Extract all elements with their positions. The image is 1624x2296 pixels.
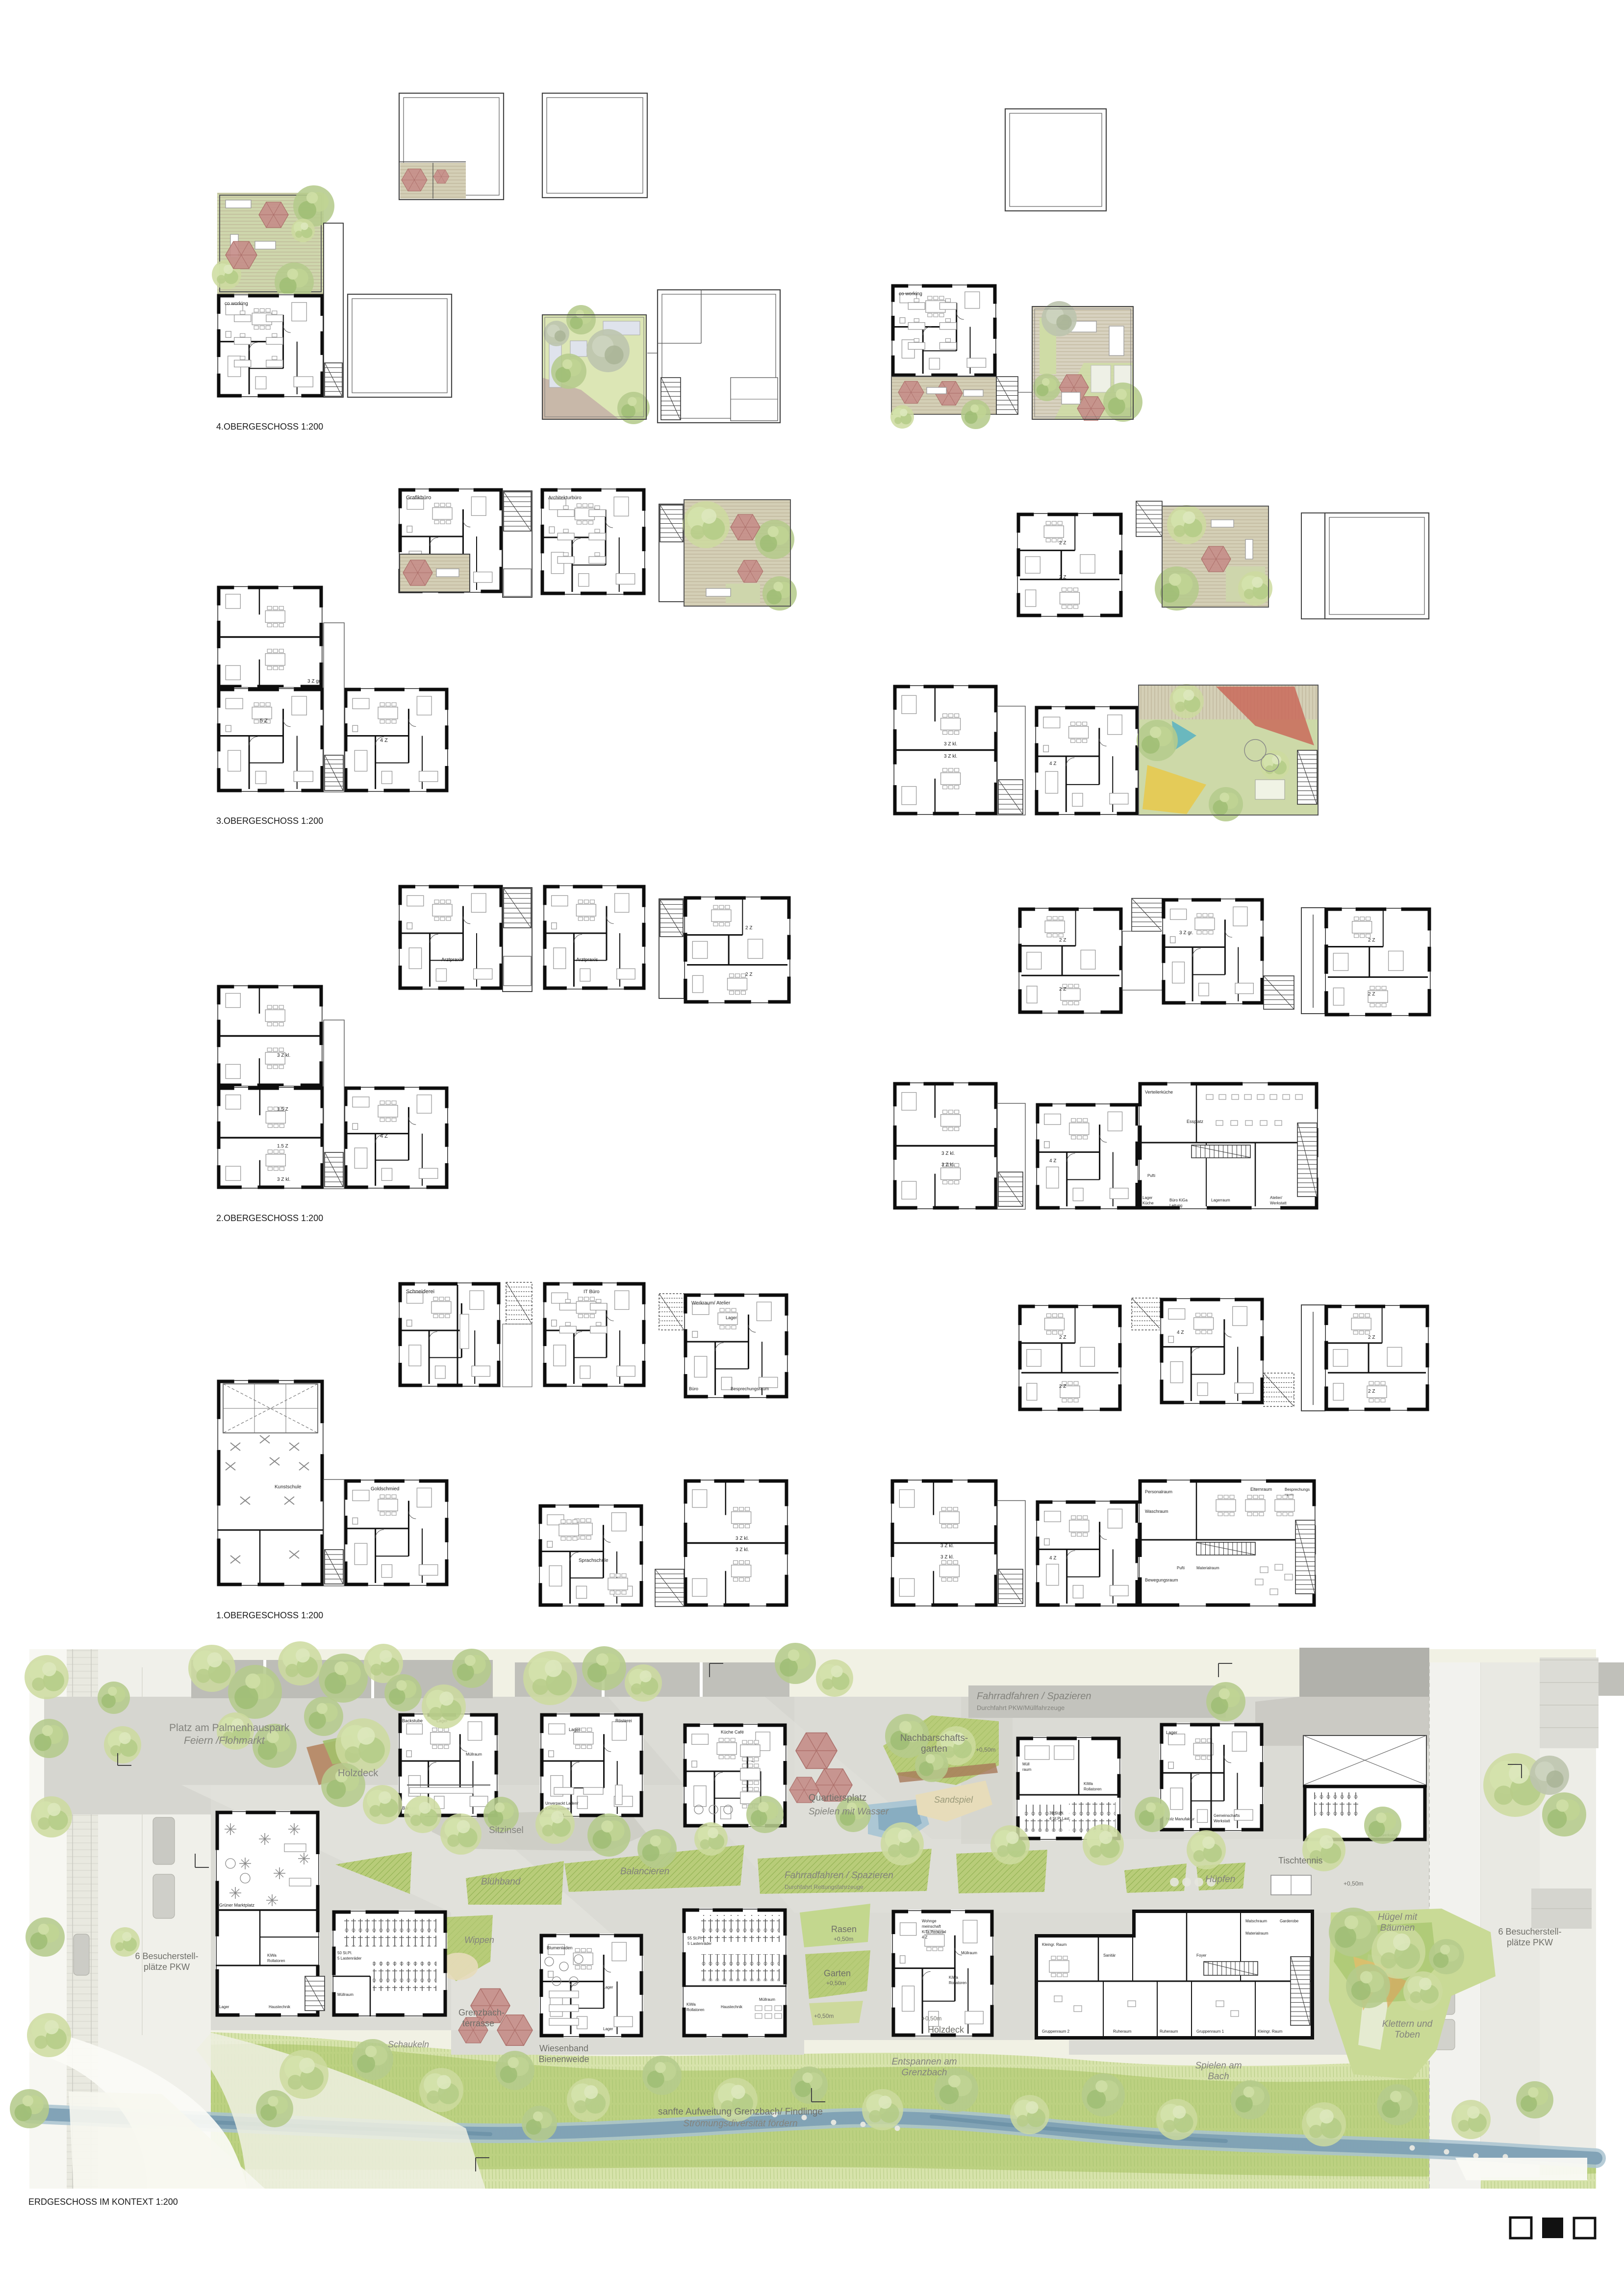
svg-text:Haustechnik: Haustechnik <box>721 2005 743 2009</box>
svg-text:Kleingr. Raum: Kleingr. Raum <box>1258 2029 1283 2034</box>
svg-text:2 Z: 2 Z <box>1059 540 1066 546</box>
svg-text:Bewegungsraum: Bewegungsraum <box>1145 1578 1178 1582</box>
svg-text:2 Z: 2 Z <box>745 972 752 977</box>
svg-text:Balancieren: Balancieren <box>620 1866 669 1877</box>
svg-text:3 Z kl.: 3 Z kl. <box>944 741 957 747</box>
svg-text:Blumenladen: Blumenladen <box>547 1945 573 1950</box>
svg-text:Gruppenraum 2: Gruppenraum 2 <box>1042 2029 1070 2034</box>
svg-text:Haustechnik: Haustechnik <box>269 2005 291 2009</box>
svg-text:6 Besucherstell-: 6 Besucherstell- <box>1498 1927 1561 1937</box>
svg-text:Schneiderei: Schneiderei <box>406 1289 434 1295</box>
svg-text:terrasse: terrasse <box>462 2018 494 2028</box>
svg-text:3.OBERGESCHOSS 1:200: 3.OBERGESCHOSS 1:200 <box>216 816 323 826</box>
svg-text:Rollatoren: Rollatoren <box>949 1981 966 1985</box>
svg-text:4 St.Pl.Last.: 4 St.Pl.Last. <box>1049 1816 1070 1821</box>
svg-text:ERDGESCHOSS IM KONTEXT 1:200: ERDGESCHOSS IM KONTEXT 1:200 <box>28 2197 178 2207</box>
svg-text:Bienenweide: Bienenweide <box>538 2054 589 2064</box>
svg-text:Nachbarschafts-: Nachbarschafts- <box>900 1733 968 1743</box>
svg-text:Architekturbüro: Architekturbüro <box>548 495 582 501</box>
svg-text:Müllraum: Müllraum <box>337 1992 354 1997</box>
svg-text:2 Z: 2 Z <box>1059 575 1066 580</box>
svg-text:Quartiersplatz: Quartiersplatz <box>809 1793 866 1803</box>
svg-text:Müllraum: Müllraum <box>466 1752 482 1757</box>
svg-text:Backstube: Backstube <box>402 1718 423 1723</box>
svg-text:raum: raum <box>1022 1767 1032 1772</box>
svg-text:2 Z: 2 Z <box>1059 1335 1066 1340</box>
svg-text:Kunstschule: Kunstschule <box>275 1484 302 1490</box>
svg-text:+0,50m: +0,50m <box>922 2015 941 2022</box>
svg-text:Personalraum: Personalraum <box>1145 1489 1172 1494</box>
svg-text:3 Z kl.: 3 Z kl. <box>940 1543 954 1549</box>
svg-text:Garderobe: Garderobe <box>1280 1919 1299 1923</box>
svg-text:Garten: Garten <box>824 1968 851 1978</box>
svg-text:Lager: Lager <box>219 2005 229 2009</box>
svg-text:2 Z: 2 Z <box>1059 938 1066 943</box>
svg-text:Toben: Toben <box>1395 2030 1420 2040</box>
svg-text:3 Z kl.: 3 Z kl. <box>736 1536 749 1541</box>
svg-text:+0,50m: +0,50m <box>1344 1880 1363 1887</box>
svg-text:3 Z kl.: 3 Z kl. <box>944 754 957 759</box>
svg-text:Lager: Lager <box>569 1727 580 1732</box>
svg-text:2 Z: 2 Z <box>1368 938 1375 943</box>
svg-text:KiWa: KiWa <box>1084 1782 1093 1786</box>
svg-text:Materialraum: Materialraum <box>1196 1566 1219 1570</box>
svg-text:Foyer: Foyer <box>1196 1953 1207 1958</box>
svg-text:2 Z: 2 Z <box>1059 987 1066 992</box>
svg-text:Entspannen am: Entspannen am <box>891 2057 957 2067</box>
svg-text:5 Lastenräder: 5 Lastenräder <box>687 1941 712 1946</box>
svg-text:3 Z kl.: 3 Z kl. <box>941 1151 955 1156</box>
svg-text:Matschraum: Matschraum <box>1245 1919 1267 1923</box>
svg-text:Lager: Lager <box>603 2027 613 2031</box>
svg-text:39 St.Pl.: 39 St.Pl. <box>1049 1811 1064 1815</box>
svg-text:Küche Café: Küche Café <box>721 1730 744 1735</box>
svg-text:Goldschmied: Goldschmied <box>371 1486 399 1492</box>
svg-text:Materialraum: Materialraum <box>1245 1931 1269 1936</box>
svg-text:Rollatoren: Rollatoren <box>686 2008 704 2012</box>
svg-text:co working: co working <box>225 301 248 306</box>
svg-text:Wohnge: Wohnge <box>922 1919 937 1923</box>
svg-text:Sprachschule: Sprachschule <box>579 1558 609 1563</box>
svg-text:Müll: Müll <box>1022 1762 1030 1766</box>
svg-text:Elternraum: Elternraum <box>1250 1487 1272 1492</box>
svg-text:Durchfahrt Rettungsfahrzeuge: Durchfahrt Rettungsfahrzeuge <box>785 1884 863 1890</box>
svg-text:garten: garten <box>921 1744 947 1754</box>
svg-text:Hüpfen: Hüpfen <box>1205 1874 1235 1885</box>
svg-text:3 Z kl.: 3 Z kl. <box>941 1162 955 1168</box>
svg-text:Fahrradfahren / Spazieren: Fahrradfahren / Spazieren <box>785 1870 893 1881</box>
svg-text:3 Z kl.: 3 Z kl. <box>736 1547 749 1553</box>
svg-text:Besprechungs: Besprechungs <box>1285 1487 1310 1492</box>
svg-text:Holzdeck: Holzdeck <box>338 1768 379 1779</box>
svg-text:Klettern und: Klettern und <box>1382 2019 1433 2029</box>
svg-text:Grenzbach: Grenzbach <box>902 2067 947 2078</box>
svg-text:Grafikbüro: Grafikbüro <box>406 495 431 501</box>
svg-text:Besprechungsraum: Besprechungsraum <box>731 1386 769 1391</box>
svg-text:Tischtennis: Tischtennis <box>1278 1856 1322 1865</box>
svg-text:+0,50m: +0,50m <box>976 1746 995 1753</box>
svg-text:Müllraum: Müllraum <box>961 1951 977 1955</box>
svg-text:Lager: Lager <box>603 1985 613 1990</box>
svg-text:Bäumen: Bäumen <box>1380 1923 1415 1933</box>
svg-text:Spielen mit Wasser: Spielen mit Wasser <box>809 1807 889 1817</box>
svg-text:KiWa: KiWa <box>267 1953 277 1958</box>
svg-text:Büro KiGa: Büro KiGa <box>1169 1198 1188 1202</box>
svg-text:6 Besucherstell-: 6 Besucherstell- <box>135 1951 198 1961</box>
svg-text:4 Z: 4 Z <box>1177 1330 1184 1335</box>
svg-text:Holzdeck: Holzdeck <box>928 2025 964 2035</box>
svg-text:Küche: Küche <box>1142 1201 1154 1205</box>
svg-text:2 Z: 2 Z <box>745 925 752 931</box>
svg-text:Rollatoren: Rollatoren <box>267 1959 285 1963</box>
svg-text:Ruheraum: Ruheraum <box>1113 2029 1132 2034</box>
svg-text:Waschraum: Waschraum <box>1145 1509 1168 1514</box>
svg-text:KiWa: KiWa <box>949 1975 958 1980</box>
svg-text:Holz Manufaktur: Holz Manufaktur <box>1166 1817 1195 1821</box>
svg-text:1.5 Z: 1.5 Z <box>277 1144 288 1149</box>
svg-text:Durchfahrt PKW/Müllfahrzeuge: Durchfahrt PKW/Müllfahrzeuge <box>977 1704 1065 1711</box>
svg-text:3 Z kl.: 3 Z kl. <box>277 1177 290 1182</box>
svg-text:Lager: Lager <box>726 1315 737 1320</box>
svg-text:50 St.Pl.: 50 St.Pl. <box>337 1951 352 1955</box>
svg-text:4 Z: 4 Z <box>922 1935 928 1939</box>
svg-text:Strömungsdiversität fördern: Strömungsdiversität fördern <box>683 2118 797 2129</box>
svg-text:IT Büro: IT Büro <box>584 1289 600 1295</box>
svg-text:1.OBERGESCHOSS 1:200: 1.OBERGESCHOSS 1:200 <box>216 1610 323 1620</box>
svg-text:Arztpraxis: Arztpraxis <box>441 957 463 963</box>
svg-text:3 Z kl.: 3 Z kl. <box>940 1555 954 1560</box>
svg-text:Müllraum: Müllraum <box>759 1997 775 2002</box>
svg-text:Sandspiel: Sandspiel <box>934 1795 973 1805</box>
svg-text:3 Z kl.: 3 Z kl. <box>277 1053 290 1058</box>
svg-text:Grenzbach-: Grenzbach- <box>458 2008 505 2017</box>
svg-text:Lager: Lager <box>1142 1196 1153 1200</box>
svg-text:4.OBERGESCHOSS 1:200: 4.OBERGESCHOSS 1:200 <box>216 422 323 432</box>
svg-text:5 Z: 5 Z <box>260 718 268 724</box>
svg-text:2 Z: 2 Z <box>1368 1335 1375 1340</box>
svg-text:meinschaft: meinschaft <box>922 1924 941 1929</box>
svg-text:Rasen: Rasen <box>831 1924 857 1934</box>
svg-text:Essplatz: Essplatz <box>1187 1119 1204 1124</box>
svg-text:Leitung: Leitung <box>1169 1203 1182 1208</box>
svg-text:Verteilerküche: Verteilerküche <box>1145 1090 1173 1095</box>
svg-text:Wiesenband: Wiesenband <box>539 2043 588 2053</box>
svg-text:1.5 Z: 1.5 Z <box>277 1107 288 1112</box>
svg-text:Grüner Marktplatz: Grüner Marktplatz <box>219 1903 255 1908</box>
svg-text:Sanitär: Sanitär <box>1103 1953 1116 1958</box>
svg-text:sanfte Aufweitung Grenzbach/ F: sanfte Aufweitung Grenzbach/ Findlinge <box>658 2107 823 2117</box>
svg-text:Werkraum/ Atelier: Werkraum/ Atelier <box>691 1301 731 1306</box>
svg-text:Hügel mit: Hügel mit <box>1378 1912 1418 1922</box>
svg-text:+0,50m: +0,50m <box>814 2013 834 2019</box>
svg-text:2 Z: 2 Z <box>1368 1389 1375 1394</box>
svg-text:Feiern /Flohmarkt: Feiern /Flohmarkt <box>184 1735 265 1746</box>
svg-text:4 Z: 4 Z <box>380 738 388 743</box>
svg-text:Blühband: Blühband <box>481 1877 521 1887</box>
svg-text:Sitzinsel: Sitzinsel <box>489 1825 524 1836</box>
svg-text:3 Z gr.: 3 Z gr. <box>1179 930 1193 936</box>
svg-text:Rösterei: Rösterei <box>615 1718 632 1723</box>
svg-text:5 Lastenräder: 5 Lastenräder <box>337 1956 362 1961</box>
svg-text:plätze PKW: plätze PKW <box>144 1962 190 1972</box>
svg-text:Atelier/: Atelier/ <box>1270 1196 1283 1200</box>
svg-text:4 Z: 4 Z <box>1049 761 1056 766</box>
svg-text:Gemeinschafts: Gemeinschafts <box>1214 1813 1240 1818</box>
svg-text:Kleingr. Raum: Kleingr. Raum <box>1042 1942 1067 1947</box>
svg-text:Schaukeln: Schaukeln <box>388 2040 429 2049</box>
svg-text:4 Z: 4 Z <box>1049 1158 1056 1164</box>
svg-text:plätze PKW: plätze PKW <box>1507 1938 1553 1947</box>
svg-text:2 Z: 2 Z <box>1059 1384 1066 1389</box>
svg-text:KiTa Personal: KiTa Personal <box>922 1930 946 1934</box>
svg-text:2.OBERGESCHOSS 1:200: 2.OBERGESCHOSS 1:200 <box>216 1213 323 1223</box>
svg-text:Pufti: Pufti <box>1147 1174 1155 1178</box>
svg-text:55 St.Pl.: 55 St.Pl. <box>687 1936 702 1940</box>
svg-text:4 Z: 4 Z <box>1049 1556 1056 1561</box>
svg-text:co working: co working <box>899 291 922 297</box>
svg-text:Spielen am: Spielen am <box>1195 2061 1242 2071</box>
svg-text:+0,50m: +0,50m <box>834 1936 853 1942</box>
svg-text:Werkstatt: Werkstatt <box>1270 1201 1287 1205</box>
svg-text:Unverpackt Laden/: Unverpackt Laden/ <box>545 1801 579 1806</box>
svg-text:3 Z gr.: 3 Z gr. <box>307 679 321 684</box>
svg-text:+0,50m: +0,50m <box>826 1980 846 1987</box>
svg-text:Platz am Palmenhauspark: Platz am Palmenhauspark <box>169 1722 290 1734</box>
svg-text:Pufti: Pufti <box>1177 1566 1185 1570</box>
svg-text:Lagerraum: Lagerraum <box>1211 1198 1230 1202</box>
svg-text:4 Z: 4 Z <box>380 1133 388 1139</box>
svg-text:Lager: Lager <box>1166 1730 1177 1735</box>
svg-text:Büro: Büro <box>689 1386 698 1391</box>
svg-text:Arztpraxis: Arztpraxis <box>576 957 598 963</box>
svg-text:Gruppenraum 1: Gruppenraum 1 <box>1196 2029 1224 2034</box>
svg-text:Rollatoren: Rollatoren <box>1084 1787 1101 1791</box>
svg-text:KiWa: KiWa <box>686 2002 696 2007</box>
svg-text:Ruheraum: Ruheraum <box>1160 2029 1178 2034</box>
svg-text:Werkstatt: Werkstatt <box>1214 1819 1230 1823</box>
svg-text:Bach: Bach <box>1208 2071 1229 2082</box>
svg-text:2 Z: 2 Z <box>1368 992 1375 997</box>
svg-text:Fahrradfahren / Spazieren: Fahrradfahren / Spazieren <box>977 1691 1091 1702</box>
svg-text:Wippen: Wippen <box>464 1935 494 1945</box>
